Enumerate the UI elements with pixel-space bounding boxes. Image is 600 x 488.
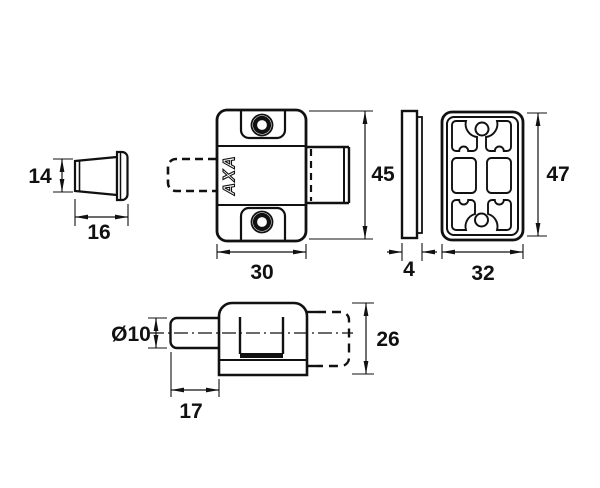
dim-striker-width-label: 32 (471, 262, 494, 285)
dashed-bolt-extension (317, 312, 349, 366)
latch-front-view (168, 110, 373, 259)
technical-drawing-canvas: 14 16 AXA 30 45 (0, 0, 600, 488)
dim-bottom-height-label: 26 (376, 328, 399, 351)
plug-side-view (53, 152, 128, 226)
dim-body-height-label: 45 (371, 163, 395, 186)
striker-side-plate (402, 111, 417, 238)
striker-front-view (442, 112, 547, 259)
dashed-pin-outline (168, 159, 216, 191)
plug-body-outline (75, 157, 117, 195)
axa-logo: AXA (220, 155, 239, 196)
dim-striker-height-label: 47 (546, 163, 569, 186)
dim-body-width-label: 30 (250, 261, 273, 284)
drawing-svg: 14 16 AXA 30 45 (0, 0, 600, 488)
latch-bottom-view (148, 303, 374, 397)
dim-striker-thickness-label: 4 (403, 258, 415, 281)
dim-pin-length-label: 17 (179, 400, 202, 423)
spring-slot-bar (240, 353, 283, 358)
striker-side-view (387, 111, 437, 261)
dim-pin-diameter-label: Ø10 (111, 323, 151, 346)
bottom-body-outline (219, 303, 307, 375)
plug-flange-outline (117, 152, 128, 200)
dim-plug-height-label: 14 (28, 165, 52, 188)
dim-plug-width-label: 16 (87, 221, 110, 244)
